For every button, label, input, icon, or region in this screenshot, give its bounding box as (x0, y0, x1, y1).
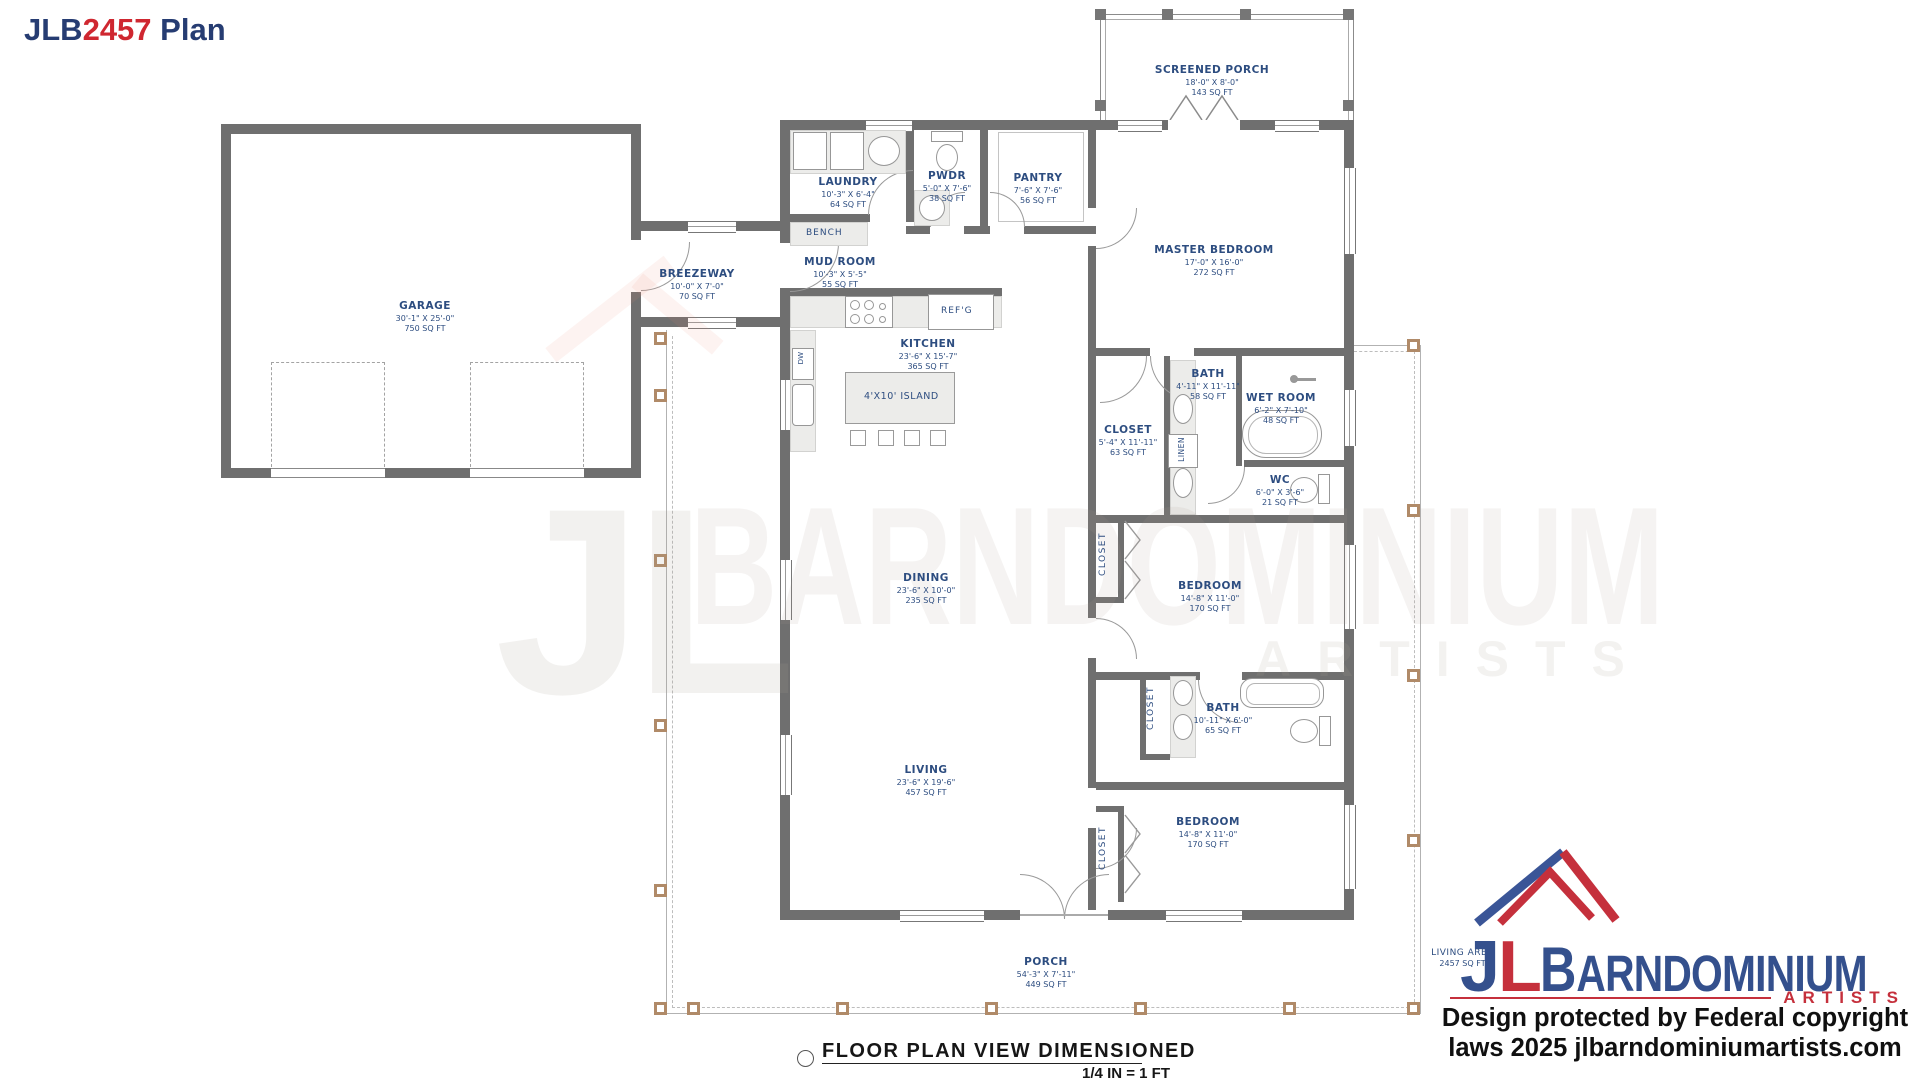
wall-segment (780, 430, 790, 560)
wall-segment (780, 214, 870, 222)
garage-door-opening (470, 468, 584, 478)
tub-inner (1246, 683, 1320, 705)
bench-label: BENCH (806, 228, 843, 238)
burner (850, 300, 860, 310)
wall-segment (1194, 348, 1354, 356)
room-label-wet-room: WET ROOM6'-2" X 7'-10"48 SQ FT (1246, 392, 1316, 426)
wall-segment (906, 226, 930, 234)
porch-edge-right (1420, 345, 1421, 1014)
porch-post (654, 719, 667, 732)
island-stool (850, 430, 866, 446)
porch-edge-top-right-inner (1354, 351, 1414, 352)
wall-segment (1240, 120, 1275, 130)
room-label-garage: GARAGE30'-1" X 25'-0"750 SQ FT (396, 300, 455, 334)
wall-segment (780, 120, 866, 130)
burner (850, 314, 860, 324)
wall-segment (1344, 120, 1354, 168)
wall-segment (1162, 120, 1168, 130)
wall-segment (1344, 254, 1354, 390)
floor-plan-sheet: JLB2457 Plan JL BARNDOMINIUM ARTISTS BEN… (0, 0, 1920, 1080)
screen-porch-post (1240, 9, 1251, 20)
wall-segment (221, 124, 641, 134)
closet2-label: CLOSET (1098, 826, 1108, 870)
toilet-bowl (936, 144, 958, 171)
porch-edge-left (666, 330, 667, 1014)
room-label-living: LIVING23'-6" X 19'-6"457 SQ FT (897, 764, 956, 798)
wall-segment (641, 317, 688, 327)
wall-segment (1088, 246, 1096, 356)
vanity-sink (1173, 680, 1193, 706)
porch-post (654, 1002, 667, 1015)
door-swing-arc (1064, 874, 1109, 919)
toilet-bowl (1290, 719, 1318, 743)
window (688, 221, 736, 233)
porch-edge-bottom (666, 1013, 1421, 1014)
window (1344, 390, 1356, 446)
porch-edge-left-inner (672, 336, 673, 1008)
room-label-dining: DINING23'-6" X 10'-0"235 SQ FT (897, 572, 956, 606)
wall-segment (641, 221, 688, 231)
screen-porch-post (1343, 9, 1354, 20)
title-number: 2457 (83, 12, 152, 47)
wall-segment (780, 910, 900, 920)
washer (793, 132, 827, 170)
garage-door-bay (470, 362, 584, 467)
closet3-label: CLOSET (1146, 686, 1156, 730)
window (688, 317, 736, 329)
wall-segment (984, 910, 1020, 920)
screen-porch-post (1162, 9, 1173, 20)
vanity-sink (1173, 714, 1193, 740)
dryer (830, 132, 864, 170)
window (780, 560, 792, 620)
porch-post (1283, 1002, 1296, 1015)
wc-toilet-tank (1318, 474, 1330, 504)
room-label-bedroom1: BEDROOM14'-8" X 11'-0"170 SQ FT (1178, 580, 1242, 614)
door-swing-arc (1100, 356, 1147, 403)
room-label-pwdr: PWDR5'-0" X 7'-6"38 SQ FT (923, 170, 971, 204)
wall-segment (736, 317, 780, 327)
window (1344, 805, 1356, 889)
wall-segment (631, 292, 641, 478)
porch-post (1407, 1002, 1420, 1015)
window (1344, 168, 1356, 254)
door-swing-arc (1020, 874, 1065, 919)
island-stool (878, 430, 894, 446)
porch-post (1407, 834, 1420, 847)
copyright-line2: laws 2025 jlbarndominiumartists.com (1440, 1034, 1910, 1063)
porch-post (654, 332, 667, 345)
closet1-label: CLOSET (1098, 532, 1108, 576)
logo-roof-icon (1468, 840, 1638, 928)
window (1275, 120, 1319, 132)
laundry-sink (868, 136, 900, 166)
room-label-master-bedroom: MASTER BEDROOM17'-0" X 16'-0"272 SQ FT (1154, 244, 1274, 278)
toilet-tank (931, 131, 963, 142)
room-label-mud-room: MUD ROOM10'-3" X 5'-5"55 SQ FT (804, 256, 876, 290)
porch-post (1407, 339, 1420, 352)
door-swing-arc (1096, 208, 1137, 249)
door-swing-arc (1096, 618, 1137, 659)
caption-title: FLOOR PLAN VIEW DIMENSIONED (822, 1040, 1196, 1063)
wall-segment (385, 468, 470, 478)
burner (864, 314, 874, 324)
room-label-kitchen: KITCHEN23'-6" X 15'-7"365 SQ FT (899, 338, 958, 372)
island-stool (930, 430, 946, 446)
dishwasher-label: DW (797, 352, 805, 364)
caption-circle-icon (797, 1050, 814, 1067)
burner (864, 300, 874, 310)
room-label-bath2: BATH10'-11" X 6'-0"65 SQ FT (1194, 702, 1253, 736)
room-label-screened-porch: SCREENED PORCH18'-0" X 8'-0"143 SQ FT (1155, 64, 1269, 98)
wall-segment (1088, 356, 1096, 618)
page-title: JLB2457 Plan (24, 12, 226, 48)
wall-segment (1140, 754, 1170, 760)
wall-segment (221, 468, 271, 478)
room-label-wc: WC6'-0" X 3'-6"21 SQ FT (1256, 474, 1304, 508)
linen-label: LINEN (1177, 437, 1186, 462)
island-label: 4'X10' ISLAND (864, 391, 939, 402)
porch-post (1134, 1002, 1147, 1015)
porch-post (654, 884, 667, 897)
wall-segment (1096, 597, 1124, 603)
porch-post (985, 1002, 998, 1015)
wall-segment (1024, 226, 1096, 234)
copyright-line1: Design protected by Federal copyright (1440, 1004, 1910, 1033)
wall-segment (964, 226, 990, 234)
refrigerator-label: REF'G (941, 306, 973, 316)
porch-post (836, 1002, 849, 1015)
screen-porch-post (1343, 100, 1354, 111)
wall-segment (1108, 910, 1166, 920)
bifold-door-icon (1124, 814, 1142, 894)
title-suffix: Plan (152, 12, 226, 47)
room-label-master-bath: BATH4'-11" X 11'-11"58 SQ FT (1176, 368, 1240, 402)
wall-segment (780, 620, 790, 735)
shower-arm-icon (1296, 378, 1316, 381)
wall-segment (221, 124, 231, 478)
garage-door-bay (271, 362, 385, 467)
toilet-tank (1319, 716, 1331, 746)
window (1344, 545, 1356, 629)
wall-segment (780, 295, 790, 380)
wall-segment (1344, 629, 1354, 805)
porch-post (687, 1002, 700, 1015)
wall-segment (584, 468, 641, 478)
wall-segment (1088, 348, 1150, 356)
wall-segment (1242, 910, 1354, 920)
room-label-bedroom2: BEDROOM14'-8" X 11'-0"170 SQ FT (1176, 816, 1240, 850)
room-label-breezeway: BREEZEWAY10'-0" X 7'-0"70 SQ FT (659, 268, 735, 302)
porch-post (654, 389, 667, 402)
burner (879, 303, 886, 310)
porch-post (654, 554, 667, 567)
wall-segment (780, 120, 790, 243)
window (900, 910, 984, 922)
shower-head-icon (1290, 375, 1298, 383)
window (780, 735, 792, 795)
caption-scale: 1/4 IN = 1 FT (900, 1065, 1170, 1080)
wall-segment (780, 795, 790, 910)
window (1118, 120, 1162, 132)
porch-post (1407, 669, 1420, 682)
wall-segment (1096, 782, 1354, 790)
room-label-laundry: LAUNDRY10'-3" X 6'-4"64 SQ FT (818, 176, 877, 210)
door-swing-arc (1208, 467, 1245, 504)
window (1166, 910, 1242, 922)
title-prefix: JLB (24, 12, 83, 47)
island-stool (904, 430, 920, 446)
garage-door-opening (271, 468, 385, 478)
wall-segment (736, 221, 780, 231)
wall-segment (1088, 120, 1096, 208)
screen-porch-post (1095, 9, 1106, 20)
wall-segment (631, 124, 641, 240)
porch-edge-bottom-inner (672, 1007, 1414, 1008)
screen-porch-post (1095, 100, 1106, 111)
vanity-sink (1173, 468, 1193, 498)
wall-segment (1088, 658, 1096, 788)
french-door-threshold (1020, 914, 1108, 916)
burner (879, 316, 886, 323)
logo-artists-line (1450, 997, 1771, 999)
porch-post (1407, 504, 1420, 517)
bifold-door-icon (1124, 520, 1142, 600)
room-label-master-closet: CLOSET5'-4" X 11'-11"63 SQ FT (1099, 424, 1158, 458)
caption-underline (822, 1063, 1142, 1064)
wall-segment (1244, 460, 1354, 467)
wall-segment (980, 120, 988, 230)
watermark-jl: JL (495, 450, 788, 755)
kitchen-sink (792, 384, 814, 426)
room-label-porch: PORCH54'-3" X 7'-11"449 SQ FT (1017, 956, 1076, 990)
room-label-pantry: PANTRY7'-6" X 7'-6"56 SQ FT (1014, 172, 1063, 206)
